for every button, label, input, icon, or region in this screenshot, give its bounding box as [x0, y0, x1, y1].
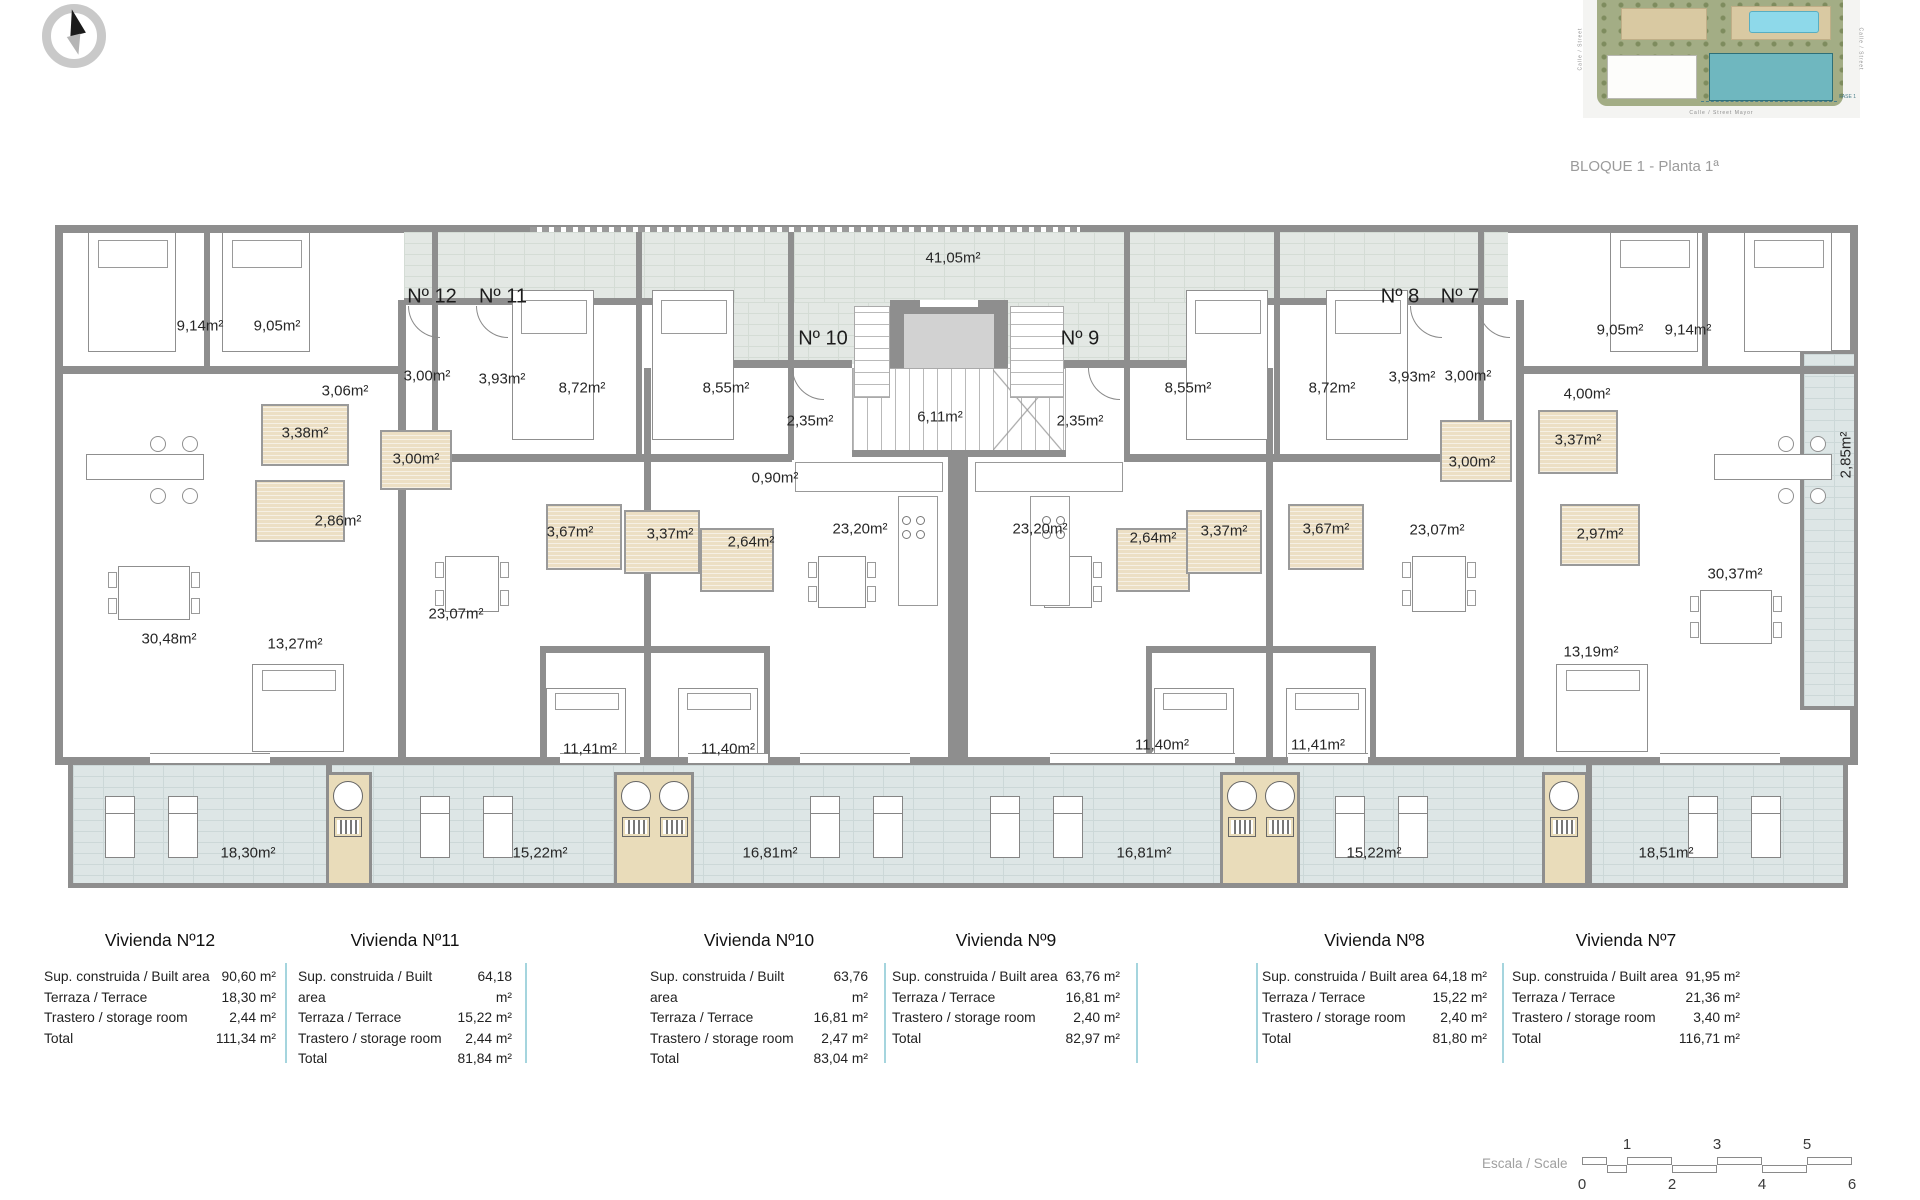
scale-number-bottom: 6 [1848, 1176, 1856, 1193]
interior-wall [852, 450, 1066, 457]
interior-wall [204, 228, 210, 370]
bed-pillow [555, 693, 619, 710]
row-value: 64,18 m² [1433, 967, 1487, 988]
row-value: 91,95 m² [1686, 967, 1740, 988]
bed-pillow [232, 240, 303, 268]
vivienda-table-title: Vivienda Nº12 [44, 930, 276, 951]
chair [500, 562, 509, 578]
room-area-label: 13,19m² [1563, 644, 1618, 661]
room-area-label: 2,64m² [1130, 530, 1177, 547]
sun-lounger [483, 796, 513, 858]
vivienda-table-row: Terraza / Terrace16,81 m² [650, 1008, 868, 1029]
row-label: Total [892, 1029, 921, 1050]
unit-number-label: Nº 11 [479, 286, 527, 309]
kitchen-counter [795, 462, 943, 492]
room-area-label: 18,51m² [1638, 845, 1693, 862]
room-area-label: 23,07m² [428, 606, 483, 623]
interior-wall [636, 232, 642, 460]
interior-wall [764, 646, 770, 762]
vivienda-table-row: Sup. construida / Built area63,76 m² [650, 967, 868, 1008]
vivienda-table-row: Total81,80 m² [1262, 1029, 1487, 1050]
interior-wall [1370, 646, 1376, 762]
lounger-backrest [106, 813, 134, 814]
bed-pillow [1295, 693, 1359, 710]
scale-bar-segment [1672, 1165, 1717, 1173]
row-value: 2,47 m² [821, 1029, 868, 1050]
interior-wall [1702, 228, 1708, 370]
kitchen-island [1714, 454, 1832, 480]
lounger-backrest [874, 813, 902, 814]
vivienda-table-row: Trastero / storage room2,44 m² [298, 1029, 512, 1050]
dining-table [445, 556, 499, 612]
lounger-backrest [811, 813, 839, 814]
row-label: Terraza / Terrace [1512, 988, 1615, 1009]
table-divider [525, 963, 527, 1063]
room-area-label: 3,67m² [1303, 521, 1350, 538]
bed [1744, 232, 1832, 352]
vivienda-table-row: Trastero / storage room2,44 m² [44, 1008, 276, 1029]
scale-number-bottom: 4 [1758, 1176, 1766, 1193]
room-area-label: 2,64m² [728, 534, 775, 551]
lounger-backrest [1689, 813, 1717, 814]
row-value: 3,40 m² [1693, 1008, 1740, 1029]
room-area-label: 11,40m² [1135, 737, 1189, 754]
room-area-label: 16,81m² [742, 845, 797, 862]
scale-number-bottom: 2 [1668, 1176, 1676, 1193]
chair [867, 562, 876, 578]
interior-wall [1516, 300, 1524, 762]
scale-bar-segment [1582, 1157, 1607, 1165]
chair [500, 590, 509, 606]
room-area-label: 15,22m² [1346, 845, 1401, 862]
vivienda-table-row: Terraza / Terrace21,36 m² [1512, 988, 1740, 1009]
bed [652, 290, 734, 440]
row-label: Trastero / storage room [298, 1029, 442, 1050]
storage-room [1220, 772, 1300, 886]
bed-pillow [98, 240, 169, 268]
lounger-backrest [991, 813, 1019, 814]
row-label: Sup. construida / Built area [1262, 967, 1428, 988]
room-area-label: 11,41m² [563, 741, 617, 758]
chair [1773, 596, 1782, 612]
room-area-label: 3,00m² [1445, 368, 1492, 385]
row-value: 81,80 m² [1433, 1029, 1487, 1050]
lounger-backrest [169, 813, 197, 814]
row-label: Terraza / Terrace [1262, 988, 1365, 1009]
room-area-label: 3,37m² [1555, 432, 1602, 449]
row-value: 64,18 m² [459, 967, 512, 1008]
vivienda-table: Vivienda Nº8Sup. construida / Built area… [1262, 930, 1487, 1049]
interior-wall [1274, 232, 1280, 460]
hob-burner-icon [916, 516, 925, 525]
vivienda-table-title: Vivienda Nº8 [1262, 930, 1487, 951]
sun-lounger [420, 796, 450, 858]
row-label: Trastero / storage room [44, 1008, 188, 1029]
vivienda-table-row: Sup. construida / Built area63,76 m² [892, 967, 1120, 988]
kitchen-counter [1030, 496, 1070, 606]
chair [1402, 590, 1411, 606]
row-value: 15,22 m² [458, 1008, 512, 1029]
vivienda-table-title: Vivienda Nº9 [892, 930, 1120, 951]
row-label: Sup. construida / Built area [892, 967, 1058, 988]
scale-number-top: 5 [1803, 1136, 1811, 1153]
water-heater-icon [333, 781, 363, 811]
kitchen-counter [898, 496, 938, 606]
vivienda-table-row: Total83,04 m² [650, 1049, 868, 1070]
row-label: Total [650, 1049, 679, 1070]
storage-room [1542, 772, 1588, 886]
kitchen-island [86, 454, 204, 480]
room-area-label: 18,30m² [220, 845, 275, 862]
row-value: 63,76 m² [1066, 967, 1120, 988]
room-area-label: 3,38m² [282, 425, 329, 442]
bed [1326, 290, 1408, 440]
chair [1093, 586, 1102, 602]
hob-burner-icon [916, 530, 925, 539]
vivienda-table-row: Total116,71 m² [1512, 1029, 1740, 1050]
elevator-door [920, 300, 978, 307]
table-divider [1502, 963, 1504, 1063]
water-heater-icon [1227, 781, 1257, 811]
bed [512, 290, 594, 440]
lounger-backrest [1336, 813, 1364, 814]
row-value: 2,40 m² [1440, 1008, 1487, 1029]
sun-lounger [810, 796, 840, 858]
row-value: 2,44 m² [229, 1008, 276, 1029]
vivienda-table-row: Total111,34 m² [44, 1029, 276, 1050]
dining-table [1700, 590, 1772, 644]
bar-stool [1778, 436, 1794, 452]
lounger-backrest [1054, 813, 1082, 814]
row-value: 81,84 m² [458, 1049, 512, 1070]
vivienda-table-row: Terraza / Terrace15,22 m² [1262, 988, 1487, 1009]
row-label: Sup. construida / Built area [298, 967, 459, 1008]
appliance-icon [622, 817, 650, 837]
vivienda-table: Vivienda Nº7Sup. construida / Built area… [1512, 930, 1740, 1049]
vivienda-table-title: Vivienda Nº7 [1512, 930, 1740, 951]
bed-pillow [661, 300, 727, 335]
vivienda-table-row: Trastero / storage room3,40 m² [1512, 1008, 1740, 1029]
room-area-label-vertical: 2,85m² [1838, 432, 1855, 479]
vivienda-table-row: Terraza / Terrace16,81 m² [892, 988, 1120, 1009]
dining-table [1412, 556, 1466, 612]
appliance-icon [1550, 817, 1578, 837]
table-divider [285, 963, 287, 1063]
chair [808, 586, 817, 602]
chair [1093, 562, 1102, 578]
bed [252, 664, 344, 752]
bathroom-floor [1186, 510, 1262, 574]
room-area-label: 11,41m² [1291, 737, 1345, 754]
scale-bar-segment [1762, 1165, 1807, 1173]
row-label: Sup. construida / Built area [1512, 967, 1678, 988]
room-area-label: 23,20m² [832, 521, 887, 538]
vivienda-table-row: Total82,97 m² [892, 1029, 1120, 1050]
interior-wall [1124, 454, 1484, 462]
room-area-label: 30,48m² [141, 631, 196, 648]
row-label: Terraza / Terrace [298, 1008, 401, 1029]
row-value: 2,40 m² [1073, 1008, 1120, 1029]
row-label: Trastero / storage room [1512, 1008, 1656, 1029]
row-value: 18,30 m² [222, 988, 276, 1009]
room-area-label: 8,72m² [559, 380, 606, 397]
room-area-label: 9,14m² [177, 318, 224, 335]
room-area-label: 3,93m² [1389, 369, 1436, 386]
bar-stool [1778, 488, 1794, 504]
unit-number-label: Nº 7 [1441, 286, 1479, 309]
sun-lounger [873, 796, 903, 858]
sun-lounger [1751, 796, 1781, 858]
dining-table [818, 556, 866, 608]
row-label: Terraza / Terrace [650, 1008, 753, 1029]
row-label: Sup. construida / Built area [650, 967, 814, 1008]
storage-room [326, 772, 372, 886]
room-area-label: 3,00m² [393, 451, 440, 468]
room-area-label: 2,35m² [787, 413, 834, 430]
vivienda-table-row: Sup. construida / Built area90,60 m² [44, 967, 276, 988]
room-area-label: 8,72m² [1309, 380, 1356, 397]
bar-stool [1810, 436, 1826, 452]
row-label: Trastero / storage room [1262, 1008, 1406, 1029]
water-heater-icon [621, 781, 651, 811]
row-label: Total [298, 1049, 327, 1070]
appliance-icon [334, 817, 362, 837]
chair [1467, 590, 1476, 606]
room-area-label: 6,11m² [917, 409, 963, 426]
room-area-label: 41,05m² [925, 250, 980, 267]
chair [435, 590, 444, 606]
room-area-label: 15,22m² [512, 845, 567, 862]
row-value: 16,81 m² [814, 1008, 868, 1029]
bed [88, 232, 176, 352]
interior-wall [1516, 366, 1856, 374]
bar-stool [150, 488, 166, 504]
vivienda-table-row: Total81,84 m² [298, 1049, 512, 1070]
sun-lounger [105, 796, 135, 858]
vivienda-table-row: Trastero / storage room2,40 m² [892, 1008, 1120, 1029]
room-area-label: 3,00m² [1449, 454, 1496, 471]
row-value: 2,44 m² [465, 1029, 512, 1050]
room-area-label: 3,93m² [479, 371, 526, 388]
chair [435, 562, 444, 578]
lounger-backrest [421, 813, 449, 814]
chair [191, 572, 200, 588]
scale-bar-segment [1807, 1157, 1852, 1165]
sun-lounger [1053, 796, 1083, 858]
vivienda-table: Vivienda Nº9Sup. construida / Built area… [892, 930, 1120, 1049]
bed [1556, 664, 1648, 752]
chair [1690, 596, 1699, 612]
sun-lounger [1398, 796, 1428, 858]
row-label: Total [44, 1029, 73, 1050]
row-value: 82,97 m² [1066, 1029, 1120, 1050]
window [1660, 753, 1780, 764]
chair [1402, 562, 1411, 578]
bed-pillow [687, 693, 751, 710]
appliance-icon [1266, 817, 1294, 837]
row-value: 83,04 m² [814, 1049, 868, 1070]
window [1288, 753, 1368, 764]
room-area-label: 3,37m² [1201, 523, 1248, 540]
room-area-label: 8,55m² [1165, 380, 1212, 397]
interior-wall [1124, 232, 1130, 460]
room-area-label: 30,37m² [1707, 566, 1762, 583]
water-heater-icon [1265, 781, 1295, 811]
sun-lounger [990, 796, 1020, 858]
vivienda-table-row: Sup. construida / Built area91,95 m² [1512, 967, 1740, 988]
stair-flight-upper-right [1010, 306, 1064, 398]
unit-number-label: Nº 12 [407, 286, 457, 309]
row-label: Trastero / storage room [892, 1008, 1036, 1029]
vivienda-table-row: Trastero / storage room2,40 m² [1262, 1008, 1487, 1029]
bar-stool [150, 436, 166, 452]
room-area-label: 3,37m² [647, 526, 694, 543]
window [1050, 753, 1160, 764]
chair [108, 572, 117, 588]
row-value: 16,81 m² [1066, 988, 1120, 1009]
bar-stool [182, 436, 198, 452]
window [1155, 753, 1235, 764]
appliance-icon [660, 817, 688, 837]
room-area-label: 3,06m² [322, 383, 369, 400]
bed-pillow [1195, 300, 1261, 335]
vivienda-table-row: Sup. construida / Built area64,18 m² [1262, 967, 1487, 988]
row-value: 15,22 m² [1433, 988, 1487, 1009]
row-label: Trastero / storage room [650, 1029, 794, 1050]
chair [867, 586, 876, 602]
window [150, 753, 270, 764]
side-terrace [1800, 350, 1858, 710]
window [800, 753, 910, 764]
chair [808, 562, 817, 578]
scale-number-top: 3 [1713, 1136, 1721, 1153]
bed-pillow [1620, 240, 1691, 268]
row-label: Total [1512, 1029, 1541, 1050]
unit-number-label: Nº 8 [1381, 286, 1419, 309]
vivienda-table-row: Terraza / Terrace15,22 m² [298, 1008, 512, 1029]
room-area-label: 2,86m² [315, 513, 362, 530]
interior-wall [540, 646, 770, 653]
bed-pillow [262, 670, 336, 691]
lounger-backrest [1752, 813, 1780, 814]
room-area-label: 3,00m² [404, 368, 451, 385]
scale-number-bottom: 0 [1578, 1176, 1586, 1193]
chair [191, 598, 200, 614]
interior-wall [432, 232, 438, 460]
interior-wall [432, 454, 792, 462]
bar-stool [182, 488, 198, 504]
lounger-backrest [1399, 813, 1427, 814]
bed-pillow [1754, 240, 1825, 268]
table-divider [1136, 963, 1138, 1063]
vivienda-table-row: Terraza / Terrace18,30 m² [44, 988, 276, 1009]
hob-burner-icon [902, 530, 911, 539]
room-area-label: 3,67m² [547, 524, 594, 541]
room-area-label: 0,90m² [752, 470, 799, 487]
bathroom-floor [255, 480, 345, 542]
vivienda-table: Vivienda Nº11Sup. construida / Built are… [298, 930, 512, 1070]
hob-burner-icon [902, 516, 911, 525]
scale-bar-segment [1607, 1165, 1627, 1173]
bed [1186, 290, 1268, 440]
lounger-backrest [484, 813, 512, 814]
bed-pillow [1163, 693, 1227, 710]
interior-wall [62, 366, 402, 374]
room-area-label: 9,14m² [1665, 322, 1712, 339]
row-label: Terraza / Terrace [44, 988, 147, 1009]
water-heater-icon [1549, 781, 1579, 811]
scale-bar-segment [1717, 1157, 1762, 1165]
scale-number-top: 1 [1623, 1136, 1631, 1153]
interior-wall [1146, 646, 1376, 653]
room-area-label: 11,40m² [701, 741, 755, 758]
room-area-label: 9,05m² [1597, 322, 1644, 339]
bed-pillow [1566, 670, 1640, 691]
room-area-label: 23,07m² [1409, 522, 1464, 539]
row-label: Sup. construida / Built area [44, 967, 210, 988]
row-value: 111,34 m² [216, 1029, 276, 1050]
room-area-label: 9,05m² [254, 318, 301, 335]
vivienda-table-title: Vivienda Nº10 [650, 930, 868, 951]
sun-lounger [168, 796, 198, 858]
storage-room [614, 772, 694, 886]
scale-label: Escala / Scale [1482, 1156, 1568, 1171]
unit-number-label: Nº 10 [798, 328, 848, 351]
room-area-label: 23,20m² [1012, 521, 1067, 538]
row-value: 90,60 m² [222, 967, 276, 988]
room-area-label: 8,55m² [703, 380, 750, 397]
chair [1773, 622, 1782, 638]
row-label: Total [1262, 1029, 1291, 1050]
chair [1690, 622, 1699, 638]
vivienda-table: Vivienda Nº10Sup. construida / Built are… [650, 930, 868, 1070]
row-value: 63,76 m² [814, 967, 868, 1008]
chair [1467, 562, 1476, 578]
chair [108, 598, 117, 614]
vivienda-table-row: Trastero / storage room2,47 m² [650, 1029, 868, 1050]
bathroom-floor [1440, 420, 1512, 482]
dining-table [118, 566, 190, 620]
row-value: 116,71 m² [1679, 1029, 1740, 1050]
bar-stool [1810, 488, 1826, 504]
table-divider [1256, 963, 1258, 1063]
room-area-label: 16,81m² [1116, 845, 1171, 862]
bed-pillow [521, 300, 587, 335]
room-area-label: 2,35m² [1057, 413, 1104, 430]
room-area-label: 4,00m² [1564, 386, 1611, 403]
vivienda-table-row: Sup. construida / Built area64,18 m² [298, 967, 512, 1008]
row-value: 21,36 m² [1686, 988, 1740, 1009]
unit-number-label: Nº 9 [1061, 328, 1099, 351]
appliance-icon [1228, 817, 1256, 837]
interior-wall [948, 454, 968, 762]
room-area-label: 2,97m² [1577, 526, 1624, 543]
stair-flight-upper [854, 306, 890, 398]
table-divider [884, 963, 886, 1063]
vivienda-table-title: Vivienda Nº11 [298, 930, 512, 951]
vivienda-table: Vivienda Nº12Sup. construida / Built are… [44, 930, 276, 1049]
kitchen-counter [975, 462, 1123, 492]
scale-bar-segment [1627, 1157, 1672, 1165]
water-heater-icon [659, 781, 689, 811]
row-label: Terraza / Terrace [892, 988, 995, 1009]
room-area-label: 13,27m² [267, 636, 322, 653]
